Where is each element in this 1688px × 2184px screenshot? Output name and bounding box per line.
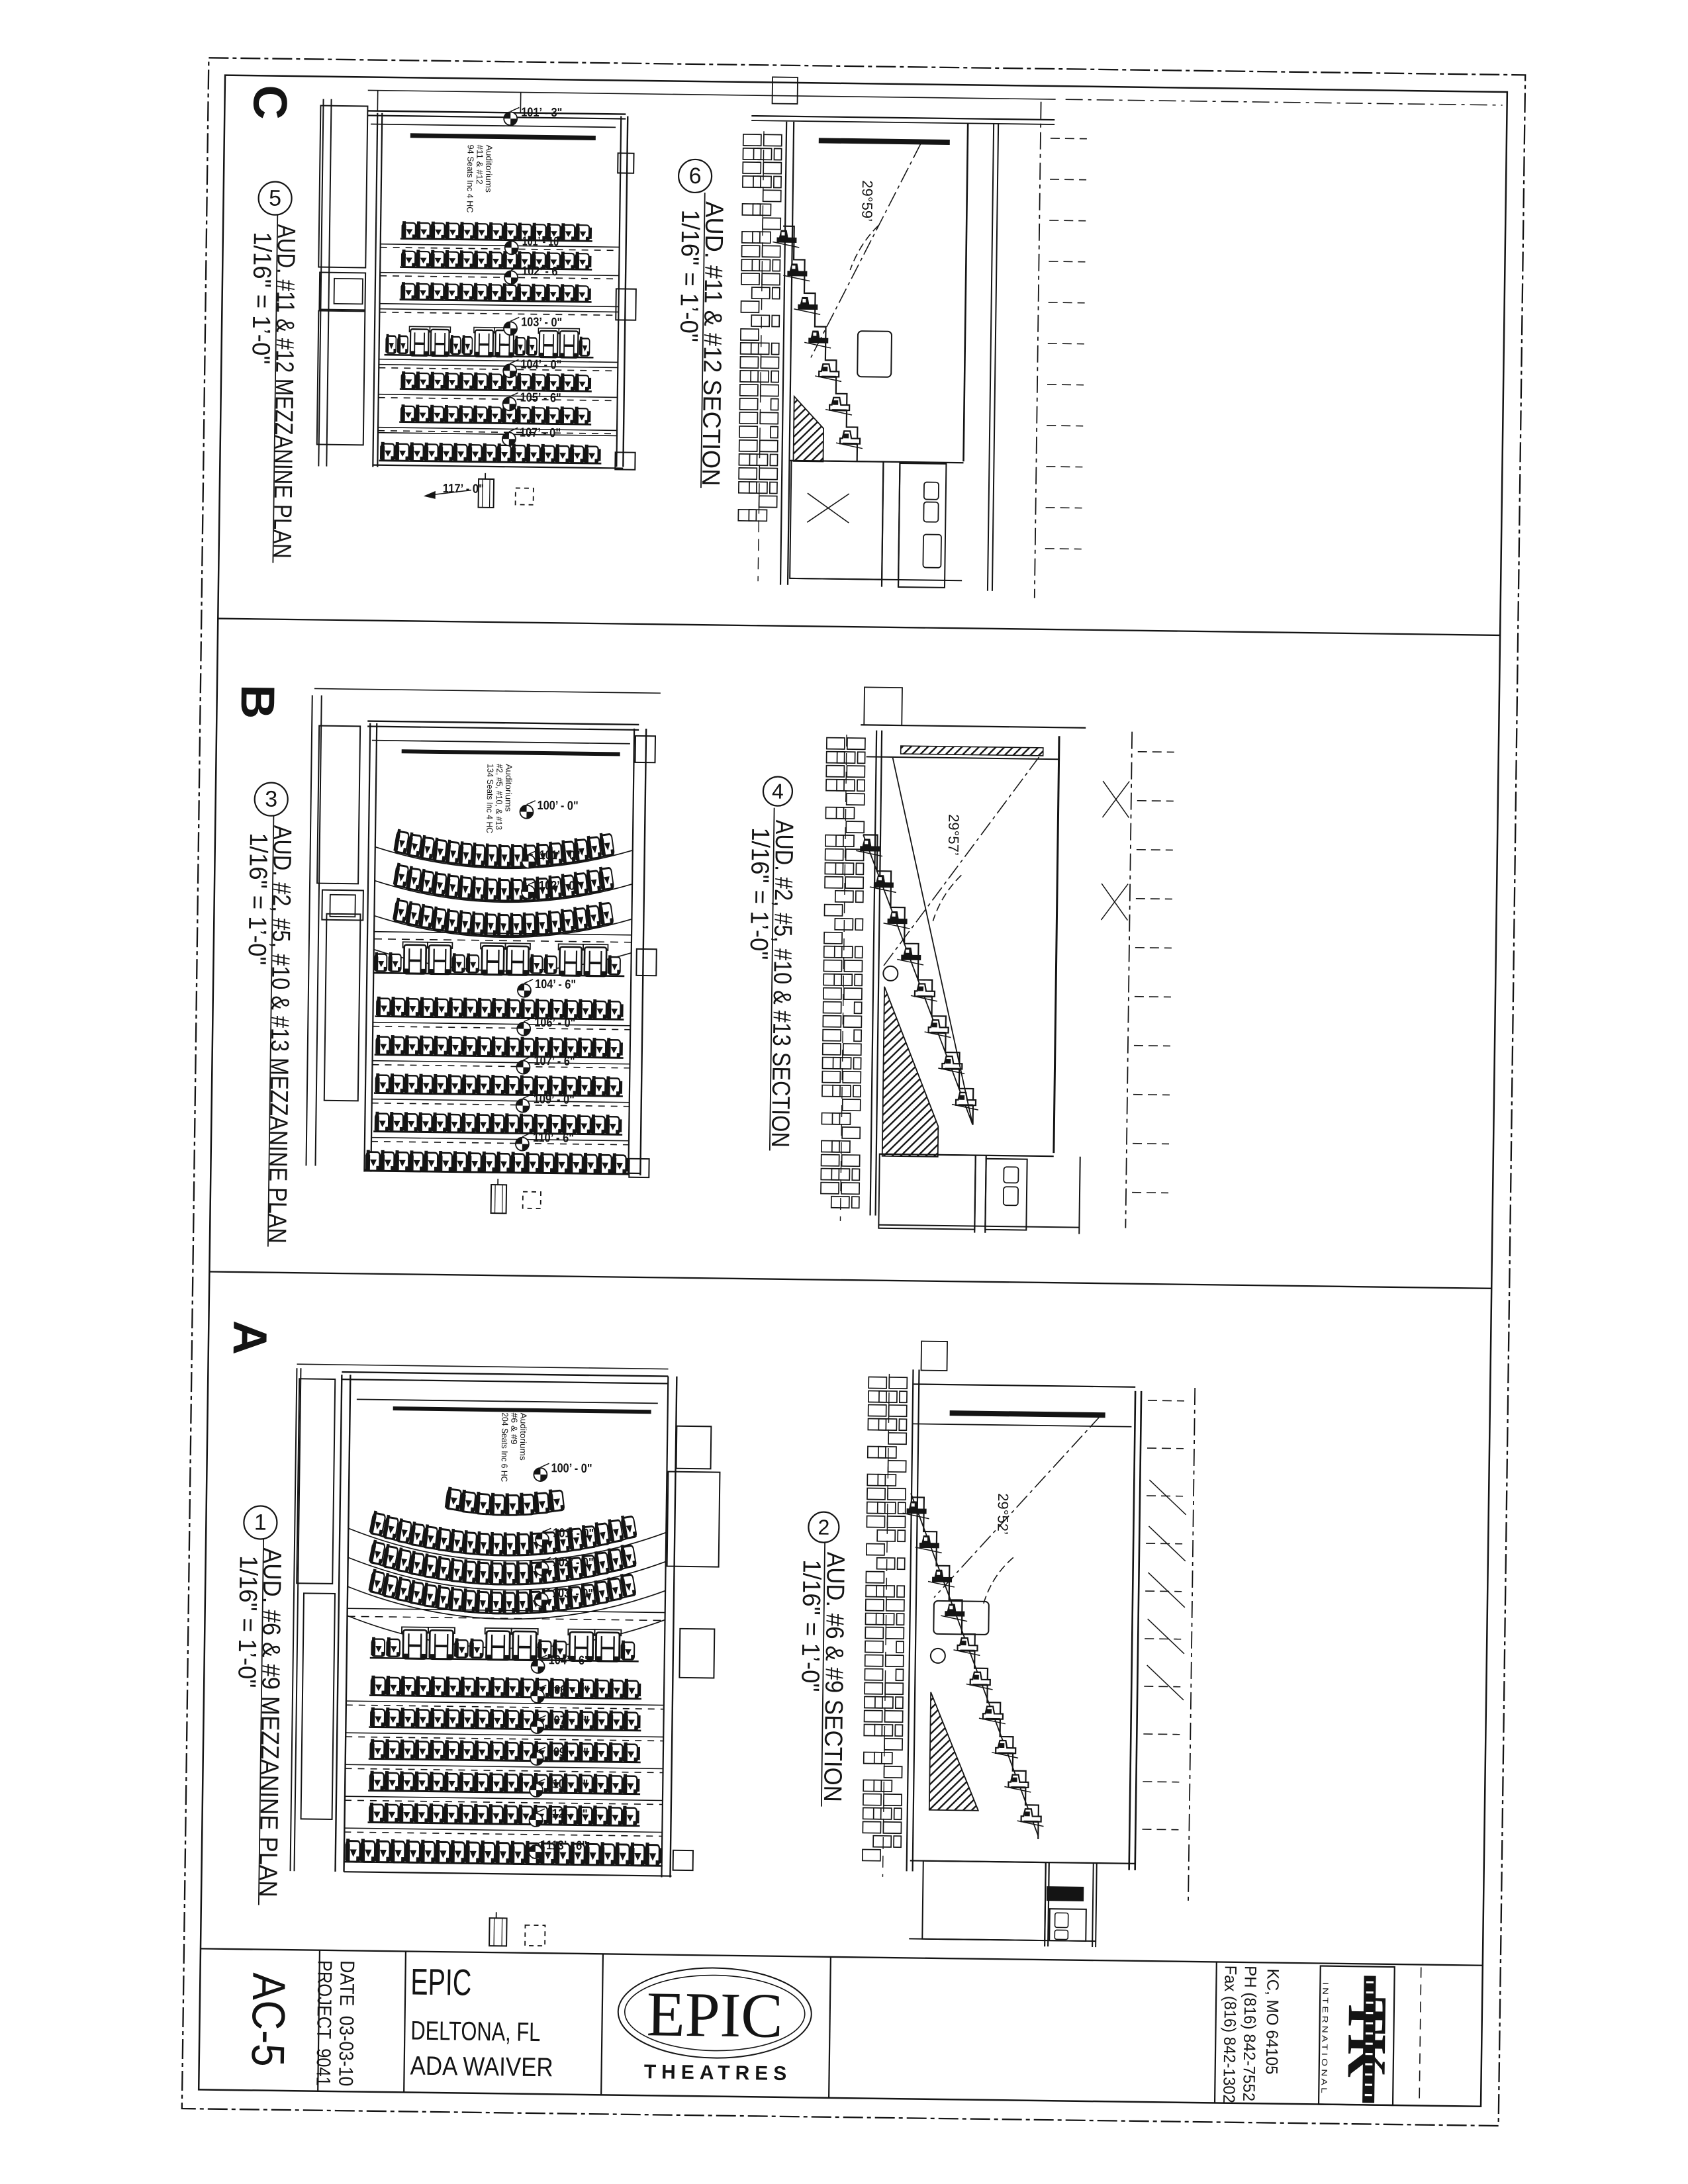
- svg-text:112’ - 0": 112’ - 0": [547, 1807, 588, 1821]
- svg-text:1/16" = 1’-0": 1/16" = 1’-0": [745, 827, 774, 960]
- svg-text:1/16" = 1’-0": 1/16" = 1’-0": [796, 1559, 825, 1692]
- svg-text:THEATRES: THEATRES: [644, 2061, 792, 2085]
- svg-text:100’ - 0": 100’ - 0": [537, 799, 578, 813]
- svg-text:104’ - 6": 104’ - 6": [549, 1653, 590, 1668]
- svg-text:29°57’: 29°57’: [945, 814, 962, 856]
- svg-text:1/16" = 1’-0": 1/16" = 1’-0": [242, 833, 272, 966]
- svg-text:I N T E R N A T I O N A L: I N T E R N A T I O N A L: [1319, 1982, 1330, 2094]
- svg-text:110’ - 6": 110’ - 6": [533, 1131, 574, 1146]
- svg-text:102’ - 0": 102’ - 0": [553, 1555, 594, 1570]
- svg-text:102’ - 6": 102’ - 6": [522, 265, 563, 279]
- svg-text:104’ - 0": 104’ - 0": [520, 358, 561, 373]
- svg-text:134 Seats Inc 4 HC: 134 Seats Inc 4 HC: [485, 764, 495, 833]
- svg-text:101’ - 10": 101’ - 10": [522, 235, 563, 250]
- svg-text:1/16" = 1’-0": 1/16" = 1’-0": [232, 1555, 262, 1688]
- svg-text:105’ - 6": 105’ - 6": [520, 391, 561, 406]
- svg-text:107’ - 6": 107’ - 6": [547, 1713, 588, 1728]
- svg-text:101’ - 0": 101’ - 0": [539, 848, 581, 863]
- svg-text:204 Seats Inc 6 HC: 204 Seats Inc 6 HC: [499, 1412, 510, 1482]
- svg-text:6: 6: [688, 163, 701, 189]
- svg-text:100’ - 0": 100’ - 0": [551, 1461, 592, 1476]
- svg-text:ADA WAIVER: ADA WAIVER: [410, 2052, 553, 2083]
- svg-text:106’ - 0": 106’ - 0": [548, 1683, 589, 1698]
- svg-text:AC-5: AC-5: [242, 1972, 295, 2067]
- svg-text:DATE 03-03-10: DATE 03-03-10: [334, 1960, 357, 2086]
- svg-text:117’ - 0": 117’ - 0": [443, 482, 484, 496]
- svg-text:94 Seats Inc 4 HC: 94 Seats Inc 4 HC: [465, 144, 475, 212]
- svg-text:107’ - 0": 107’ - 0": [520, 426, 561, 441]
- svg-text:A: A: [223, 1320, 277, 1355]
- svg-text:PROJECT 9041: PROJECT 9041: [312, 1960, 335, 2086]
- svg-text:PH (816) 842-7552: PH (816) 842-7552: [1239, 1966, 1260, 2101]
- svg-text:104’ - 6": 104’ - 6": [535, 978, 576, 992]
- svg-text:1/16" = 1’-0": 1/16" = 1’-0": [246, 232, 276, 365]
- svg-text:113’ - 6": 113’ - 6": [546, 1839, 587, 1853]
- svg-text:103’ - 0": 103’ - 0": [521, 316, 562, 330]
- svg-text:1/16" = 1’-0": 1/16" = 1’-0": [675, 210, 704, 343]
- svg-text:B: B: [230, 684, 284, 719]
- svg-text:109’ - 0": 109’ - 0": [534, 1093, 575, 1107]
- svg-text:EPIC: EPIC: [410, 1961, 472, 2003]
- svg-text:103’ - 0": 103’ - 0": [552, 1586, 593, 1601]
- svg-text:4: 4: [772, 780, 784, 803]
- svg-text:110’ - 6": 110’ - 6": [547, 1777, 588, 1792]
- svg-text:KC, MO 64105: KC, MO 64105: [1262, 1968, 1282, 2074]
- svg-text:109’ - 0": 109’ - 0": [547, 1745, 588, 1760]
- svg-text:5: 5: [269, 186, 281, 211]
- svg-text:TK: TK: [1336, 1997, 1399, 2078]
- svg-text:106’ - 0": 106’ - 0": [534, 1016, 575, 1030]
- svg-text:29°59’: 29°59’: [859, 180, 876, 222]
- svg-text:2: 2: [818, 1516, 829, 1539]
- svg-text:101’ - 3": 101’ - 3": [521, 105, 562, 120]
- svg-text:3: 3: [265, 787, 277, 812]
- svg-text:C: C: [243, 85, 297, 120]
- svg-text:Fax (816) 842-1302: Fax (816) 842-1302: [1219, 1966, 1240, 2103]
- svg-text:1: 1: [254, 1510, 267, 1535]
- svg-text:107’ - 6": 107’ - 6": [534, 1054, 575, 1069]
- svg-text:EPIC: EPIC: [646, 1978, 783, 2051]
- svg-text:102’ - 0": 102’ - 0": [539, 879, 580, 893]
- svg-text:DELTONA, FL: DELTONA, FL: [410, 2017, 541, 2048]
- svg-text:101’ - 0": 101’ - 0": [553, 1526, 594, 1541]
- svg-text:29°52’: 29°52’: [994, 1493, 1011, 1535]
